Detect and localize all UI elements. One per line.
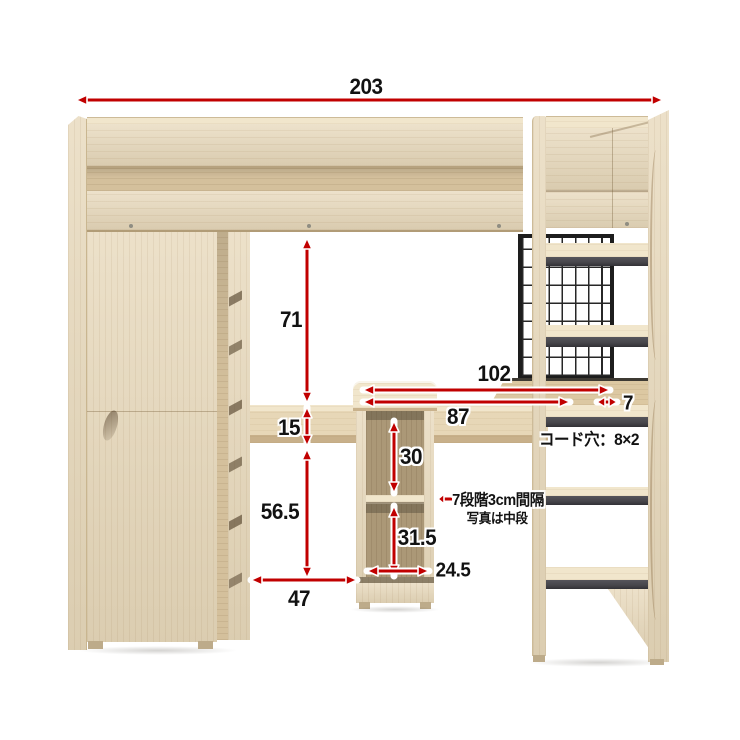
dim-total-width: 203 bbox=[349, 74, 382, 100]
dim-desk-thickness: 15 bbox=[278, 415, 300, 441]
dim-shelf-opening-width: 24.5 bbox=[436, 560, 471, 583]
dim-under-desk-clearance: 56.5 bbox=[261, 499, 299, 525]
dim-desk-right-width: 7 bbox=[623, 393, 633, 416]
dim-desk-total-width: 102 bbox=[477, 361, 510, 387]
dim-shelf-lower-opening: 31.5 bbox=[398, 525, 436, 551]
dim-desk-left-width: 87 bbox=[447, 404, 469, 430]
product-dimension-diagram: 203 71 15 56.5 47 102 87 7 30 31.5 24.5 … bbox=[0, 0, 740, 740]
dim-left-opening-width: 47 bbox=[288, 586, 310, 612]
dimension-arrows bbox=[0, 0, 740, 740]
note-shelf-position: 写真は中段 bbox=[466, 507, 527, 527]
note-cord-hole: コード穴：8×2 bbox=[539, 426, 639, 450]
dim-under-bed-clearance: 71 bbox=[280, 307, 302, 333]
dim-shelf-upper-opening: 30 bbox=[400, 444, 422, 470]
